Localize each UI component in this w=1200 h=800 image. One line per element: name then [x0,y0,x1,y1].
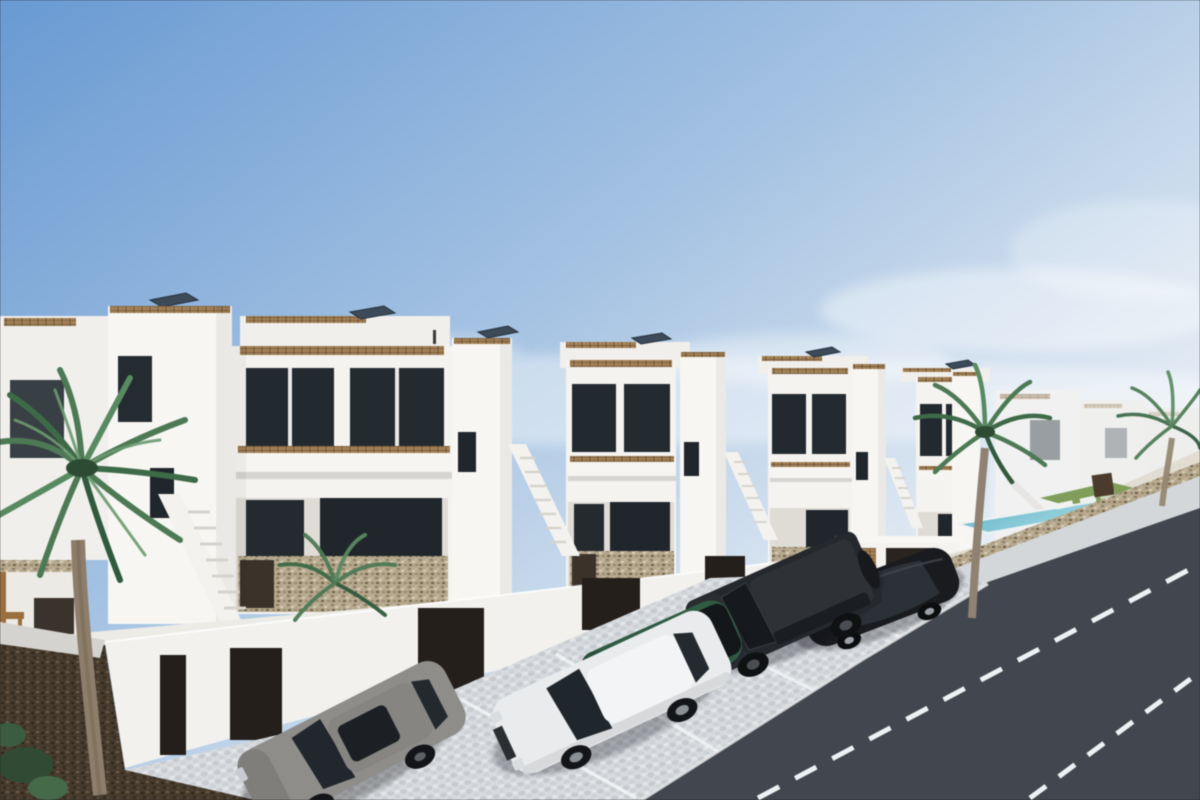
door [856,452,868,480]
privacy-screen [1092,473,1115,498]
door [684,442,699,476]
balcony-railing [570,456,674,462]
stair-tower [452,338,512,600]
roof-terrace-railing [570,360,672,367]
roof-terrace-railing [240,346,444,355]
roof-terrace-railing [772,368,848,374]
window [772,394,806,454]
balcony-railing [771,462,850,467]
townhouse-unit-2 [566,360,676,589]
window [920,404,942,456]
window [812,394,846,454]
window [572,384,616,452]
window [624,384,670,452]
door [458,432,476,472]
render-image [0,0,1200,800]
planter [34,598,74,634]
chimney [433,330,436,344]
balcony-railing [238,446,450,453]
stair-tower [680,352,726,582]
townhouse-unit-1 [232,346,452,614]
